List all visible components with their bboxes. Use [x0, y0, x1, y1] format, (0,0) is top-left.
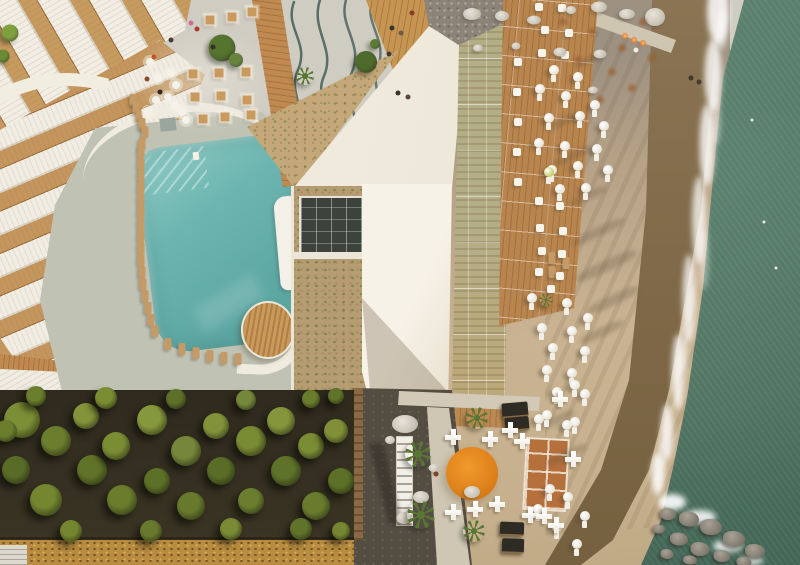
person: [406, 95, 411, 100]
tree: [137, 405, 167, 435]
pool-lounger: [165, 338, 172, 350]
deck-table: [558, 250, 566, 258]
palm-tree: [463, 520, 485, 542]
tree: [324, 419, 348, 443]
beach-stone: [512, 43, 521, 50]
pool-lounger: [221, 352, 228, 364]
beach-umbrella: [562, 298, 572, 308]
pool-lounger: [138, 158, 145, 170]
golden-scrub-strip: [0, 537, 354, 565]
person: [158, 90, 163, 95]
torch-flame: [640, 40, 646, 46]
beach-umbrella: [555, 184, 565, 194]
person: [390, 26, 395, 31]
person: [211, 45, 216, 50]
tree: [140, 520, 162, 542]
parasol-table: [205, 15, 216, 26]
chair-set: [171, 101, 179, 109]
person: [145, 77, 150, 82]
deck-table: [558, 4, 566, 12]
breakwater-rock: [745, 544, 765, 558]
sea-foam: [658, 494, 686, 510]
breakwater-rock: [661, 549, 674, 559]
chair-set: [154, 74, 162, 82]
person: [634, 48, 639, 53]
dry-plant: [606, 67, 619, 78]
cross-sunbed: [489, 496, 505, 512]
beach-umbrella: [573, 161, 583, 171]
parasol-table: [246, 110, 257, 121]
pool-lounger: [193, 347, 200, 359]
person: [169, 38, 174, 43]
breakwater-rock: [691, 542, 710, 556]
dry-plant: [626, 83, 639, 94]
bush: [2, 25, 19, 42]
dry-plant: [586, 27, 599, 38]
sea-speck: [775, 267, 778, 270]
pool-lounger: [138, 146, 145, 158]
chair-set: [164, 93, 172, 101]
tree: [30, 484, 62, 516]
dry-plant: [557, 17, 570, 28]
tree: [41, 426, 71, 456]
cross-sunbed: [502, 422, 518, 438]
person: [396, 91, 401, 96]
gray-mat: [159, 117, 176, 132]
tree: [298, 433, 324, 459]
roof-skylight: [299, 196, 364, 258]
beach-umbrella: [580, 389, 590, 399]
beach-stone: [566, 6, 576, 14]
sea-foam: [680, 325, 688, 375]
parasol-table: [198, 114, 209, 125]
person: [689, 76, 694, 81]
beach-stone: [588, 87, 598, 94]
tree: [238, 488, 264, 514]
parasol-table: [227, 12, 238, 23]
deck-table: [541, 26, 549, 34]
dark-daybed: [502, 538, 525, 554]
scene: [0, 0, 800, 565]
parasol-table: [214, 68, 225, 79]
beach-umbrella: [534, 138, 544, 148]
torch-flame: [622, 33, 628, 39]
beach-stone: [527, 16, 541, 25]
beach-umbrella: [548, 343, 558, 353]
beach-umbrella: [570, 380, 580, 390]
chair-set: [182, 116, 190, 124]
deck-table: [559, 227, 567, 235]
beach-umbrella: [599, 121, 609, 131]
beach-stone: [495, 11, 509, 21]
person: [697, 80, 702, 85]
breakwater-rock: [653, 525, 665, 534]
parasol-table: [190, 92, 201, 103]
roof-divider: [291, 252, 364, 259]
cross-sunbed: [482, 431, 498, 447]
tree: [302, 390, 320, 408]
parasol-table: [242, 95, 253, 106]
palm-tree: [405, 441, 431, 467]
deck-table: [565, 29, 573, 37]
beach-umbrella: [562, 420, 572, 430]
breakwater-rock: [700, 519, 722, 535]
tree: [77, 455, 107, 485]
sea-foam: [717, 10, 727, 50]
beach-umbrella: [583, 313, 593, 323]
tree: [302, 492, 330, 520]
deck-table: [556, 202, 564, 210]
pool-lounger: [138, 254, 145, 266]
bush: [229, 53, 243, 67]
breakwater-rock: [679, 512, 699, 527]
cross-sunbed: [445, 504, 461, 520]
palm-tree: [407, 501, 435, 529]
tree: [2, 456, 30, 484]
beach-umbrella: [592, 144, 602, 154]
deck-table: [536, 224, 544, 232]
deck-table: [538, 49, 546, 57]
beach-umbrella: [572, 539, 582, 549]
beach-umbrella: [580, 511, 590, 521]
beach-umbrella: [573, 72, 583, 82]
beach-umbrella: [527, 293, 537, 303]
parasol-table: [216, 91, 227, 102]
breakwater-rock: [683, 556, 697, 565]
dark-daybed: [500, 522, 524, 537]
sea-speck: [751, 119, 754, 122]
person: [152, 55, 157, 60]
sea-foam: [712, 95, 721, 145]
palm-tree: [540, 294, 553, 307]
tree: [171, 436, 201, 466]
person: [387, 52, 392, 57]
tree: [267, 407, 295, 435]
pool-lounger: [145, 302, 152, 314]
chair-set: [144, 108, 152, 116]
cross-sunbed: [552, 391, 568, 407]
beach-stone: [594, 50, 607, 59]
deck-table: [535, 3, 543, 11]
person: [195, 27, 200, 32]
parasol-table: [188, 69, 199, 80]
pool-lounger: [140, 278, 147, 290]
deck-table: [514, 178, 522, 186]
beach-umbrella: [560, 141, 570, 151]
breakwater-rock: [660, 508, 676, 520]
torch-flame: [631, 37, 637, 43]
pool-lounger: [138, 170, 145, 182]
tree: [60, 520, 82, 542]
beach-stone: [619, 9, 635, 19]
tree: [271, 456, 301, 486]
tree: [166, 389, 186, 409]
breakwater-rock: [723, 531, 745, 547]
beach-umbrella: [580, 346, 590, 356]
beach-umbrella: [549, 65, 559, 75]
palm-tree: [296, 67, 314, 85]
tree: [203, 413, 229, 439]
pool-lounger: [138, 194, 145, 206]
cross-sunbed: [536, 508, 552, 524]
tree: [236, 390, 256, 410]
pool-lounger: [235, 353, 242, 365]
pool-lounger: [138, 242, 145, 254]
beach-umbrella: [603, 165, 613, 175]
bush: [355, 51, 377, 73]
beach-umbrella: [581, 183, 591, 193]
deck-table: [535, 268, 543, 276]
tree: [107, 485, 137, 515]
breakwater-rock: [737, 557, 752, 565]
pool-lounger: [138, 182, 145, 194]
beach-umbrella: [544, 167, 554, 177]
beach-umbrella: [563, 492, 573, 502]
beach-stone: [591, 2, 607, 13]
person: [410, 11, 415, 16]
pool-lounger: [142, 126, 149, 138]
tree: [328, 388, 344, 404]
beach-umbrella: [575, 111, 585, 121]
bush: [370, 39, 380, 49]
beach-stone: [554, 48, 567, 57]
tree: [207, 457, 235, 485]
deck-table: [556, 272, 564, 280]
pool-lounger: [139, 266, 146, 278]
beach-umbrella: [534, 414, 544, 424]
cross-sunbed: [565, 451, 581, 467]
chair-set: [178, 108, 186, 116]
tree: [177, 492, 205, 520]
dry-plant: [616, 43, 629, 54]
beach-stone: [464, 486, 480, 498]
beach-umbrella: [567, 368, 577, 378]
parasol-table: [241, 67, 252, 78]
beach-umbrella: [544, 113, 554, 123]
beach-stone: [392, 415, 418, 433]
sea-speck: [763, 221, 766, 224]
parasol-table: [247, 7, 258, 18]
tree: [332, 522, 350, 540]
beach-stone: [385, 436, 395, 444]
breakwater-rock: [670, 533, 688, 546]
parasol-table: [220, 112, 231, 123]
pool-lounger: [138, 206, 145, 218]
beach-umbrella: [542, 365, 552, 375]
beach-umbrella: [561, 91, 571, 101]
deck-table: [538, 247, 546, 255]
tree: [328, 468, 354, 494]
dry-plant: [637, 17, 650, 28]
beach-umbrella: [545, 484, 555, 494]
person: [434, 472, 439, 477]
tree: [95, 387, 117, 409]
palm-tree: [466, 407, 488, 429]
chair-set: [167, 69, 175, 77]
person: [189, 21, 194, 26]
tree: [290, 518, 312, 540]
dry-plant: [572, 55, 585, 66]
deck-table: [547, 285, 555, 293]
tree: [220, 518, 242, 540]
corner-steps: [0, 545, 27, 565]
sea-foam: [658, 440, 666, 470]
person: [399, 31, 404, 36]
deck-table: [514, 58, 522, 66]
pool-ladder: [193, 152, 200, 161]
cross-sunbed: [467, 501, 483, 517]
tree: [236, 426, 266, 456]
sea-foam: [700, 230, 709, 290]
pool-lounger: [179, 343, 186, 355]
deck-table: [513, 148, 521, 156]
beach-stone: [473, 45, 483, 52]
tree: [102, 432, 130, 460]
tree: [26, 386, 46, 406]
beach-umbrella: [590, 100, 600, 110]
deck-lounger: [563, 257, 570, 269]
beach-umbrella: [535, 84, 545, 94]
beach-umbrella: [537, 323, 547, 333]
chair-set: [152, 96, 160, 104]
deck-table: [514, 118, 522, 126]
pool-lounger: [138, 218, 145, 230]
tree: [73, 403, 99, 429]
cross-sunbed: [445, 429, 461, 445]
beach-umbrella: [567, 326, 577, 336]
deck-table: [535, 197, 543, 205]
tree: [144, 468, 170, 494]
deck-table: [513, 88, 521, 96]
deck-lounger: [549, 266, 556, 278]
pool-lounger: [138, 230, 145, 242]
beach-stone: [463, 8, 481, 20]
breakwater-rock: [714, 550, 731, 562]
round-wooden-deck: [241, 301, 295, 359]
pool-lounger: [152, 325, 159, 337]
deck-lounger: [549, 252, 556, 264]
pool-lounger: [207, 350, 214, 362]
chair-set: [172, 81, 180, 89]
pool-lounger: [142, 290, 149, 302]
dry-plant: [646, 53, 659, 64]
